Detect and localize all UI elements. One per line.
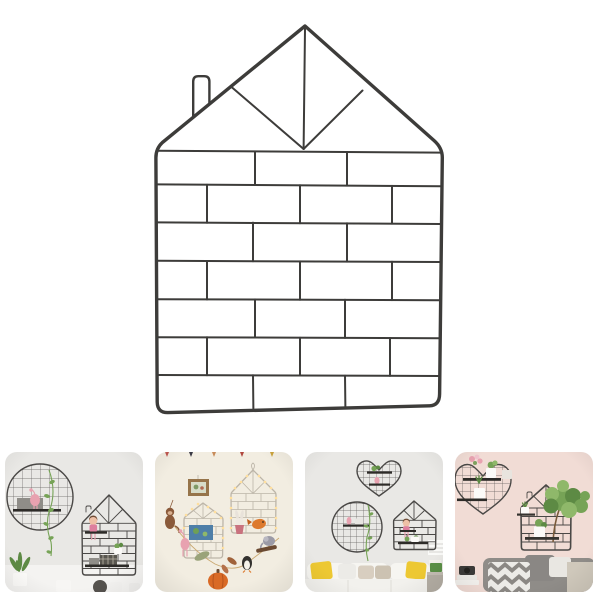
thumbnail-lifestyle-4[interactable] bbox=[455, 452, 593, 592]
product-gallery bbox=[0, 0, 600, 600]
roof-fan-lines bbox=[232, 29, 363, 149]
brick-joints bbox=[207, 152, 392, 411]
thumbnail-lifestyle-3[interactable] bbox=[305, 452, 443, 592]
vignette bbox=[305, 452, 443, 592]
thumbnail-lifestyle-2[interactable] bbox=[155, 452, 293, 592]
thumbnail-strip bbox=[5, 452, 593, 592]
main-product-photo bbox=[0, 0, 600, 450]
vignette bbox=[5, 452, 143, 592]
vignette bbox=[455, 452, 593, 592]
house-grid-product bbox=[0, 0, 600, 450]
vignette bbox=[155, 452, 293, 592]
thumbnail-lifestyle-1[interactable] bbox=[5, 452, 143, 592]
house-wire-grid bbox=[156, 26, 442, 413]
